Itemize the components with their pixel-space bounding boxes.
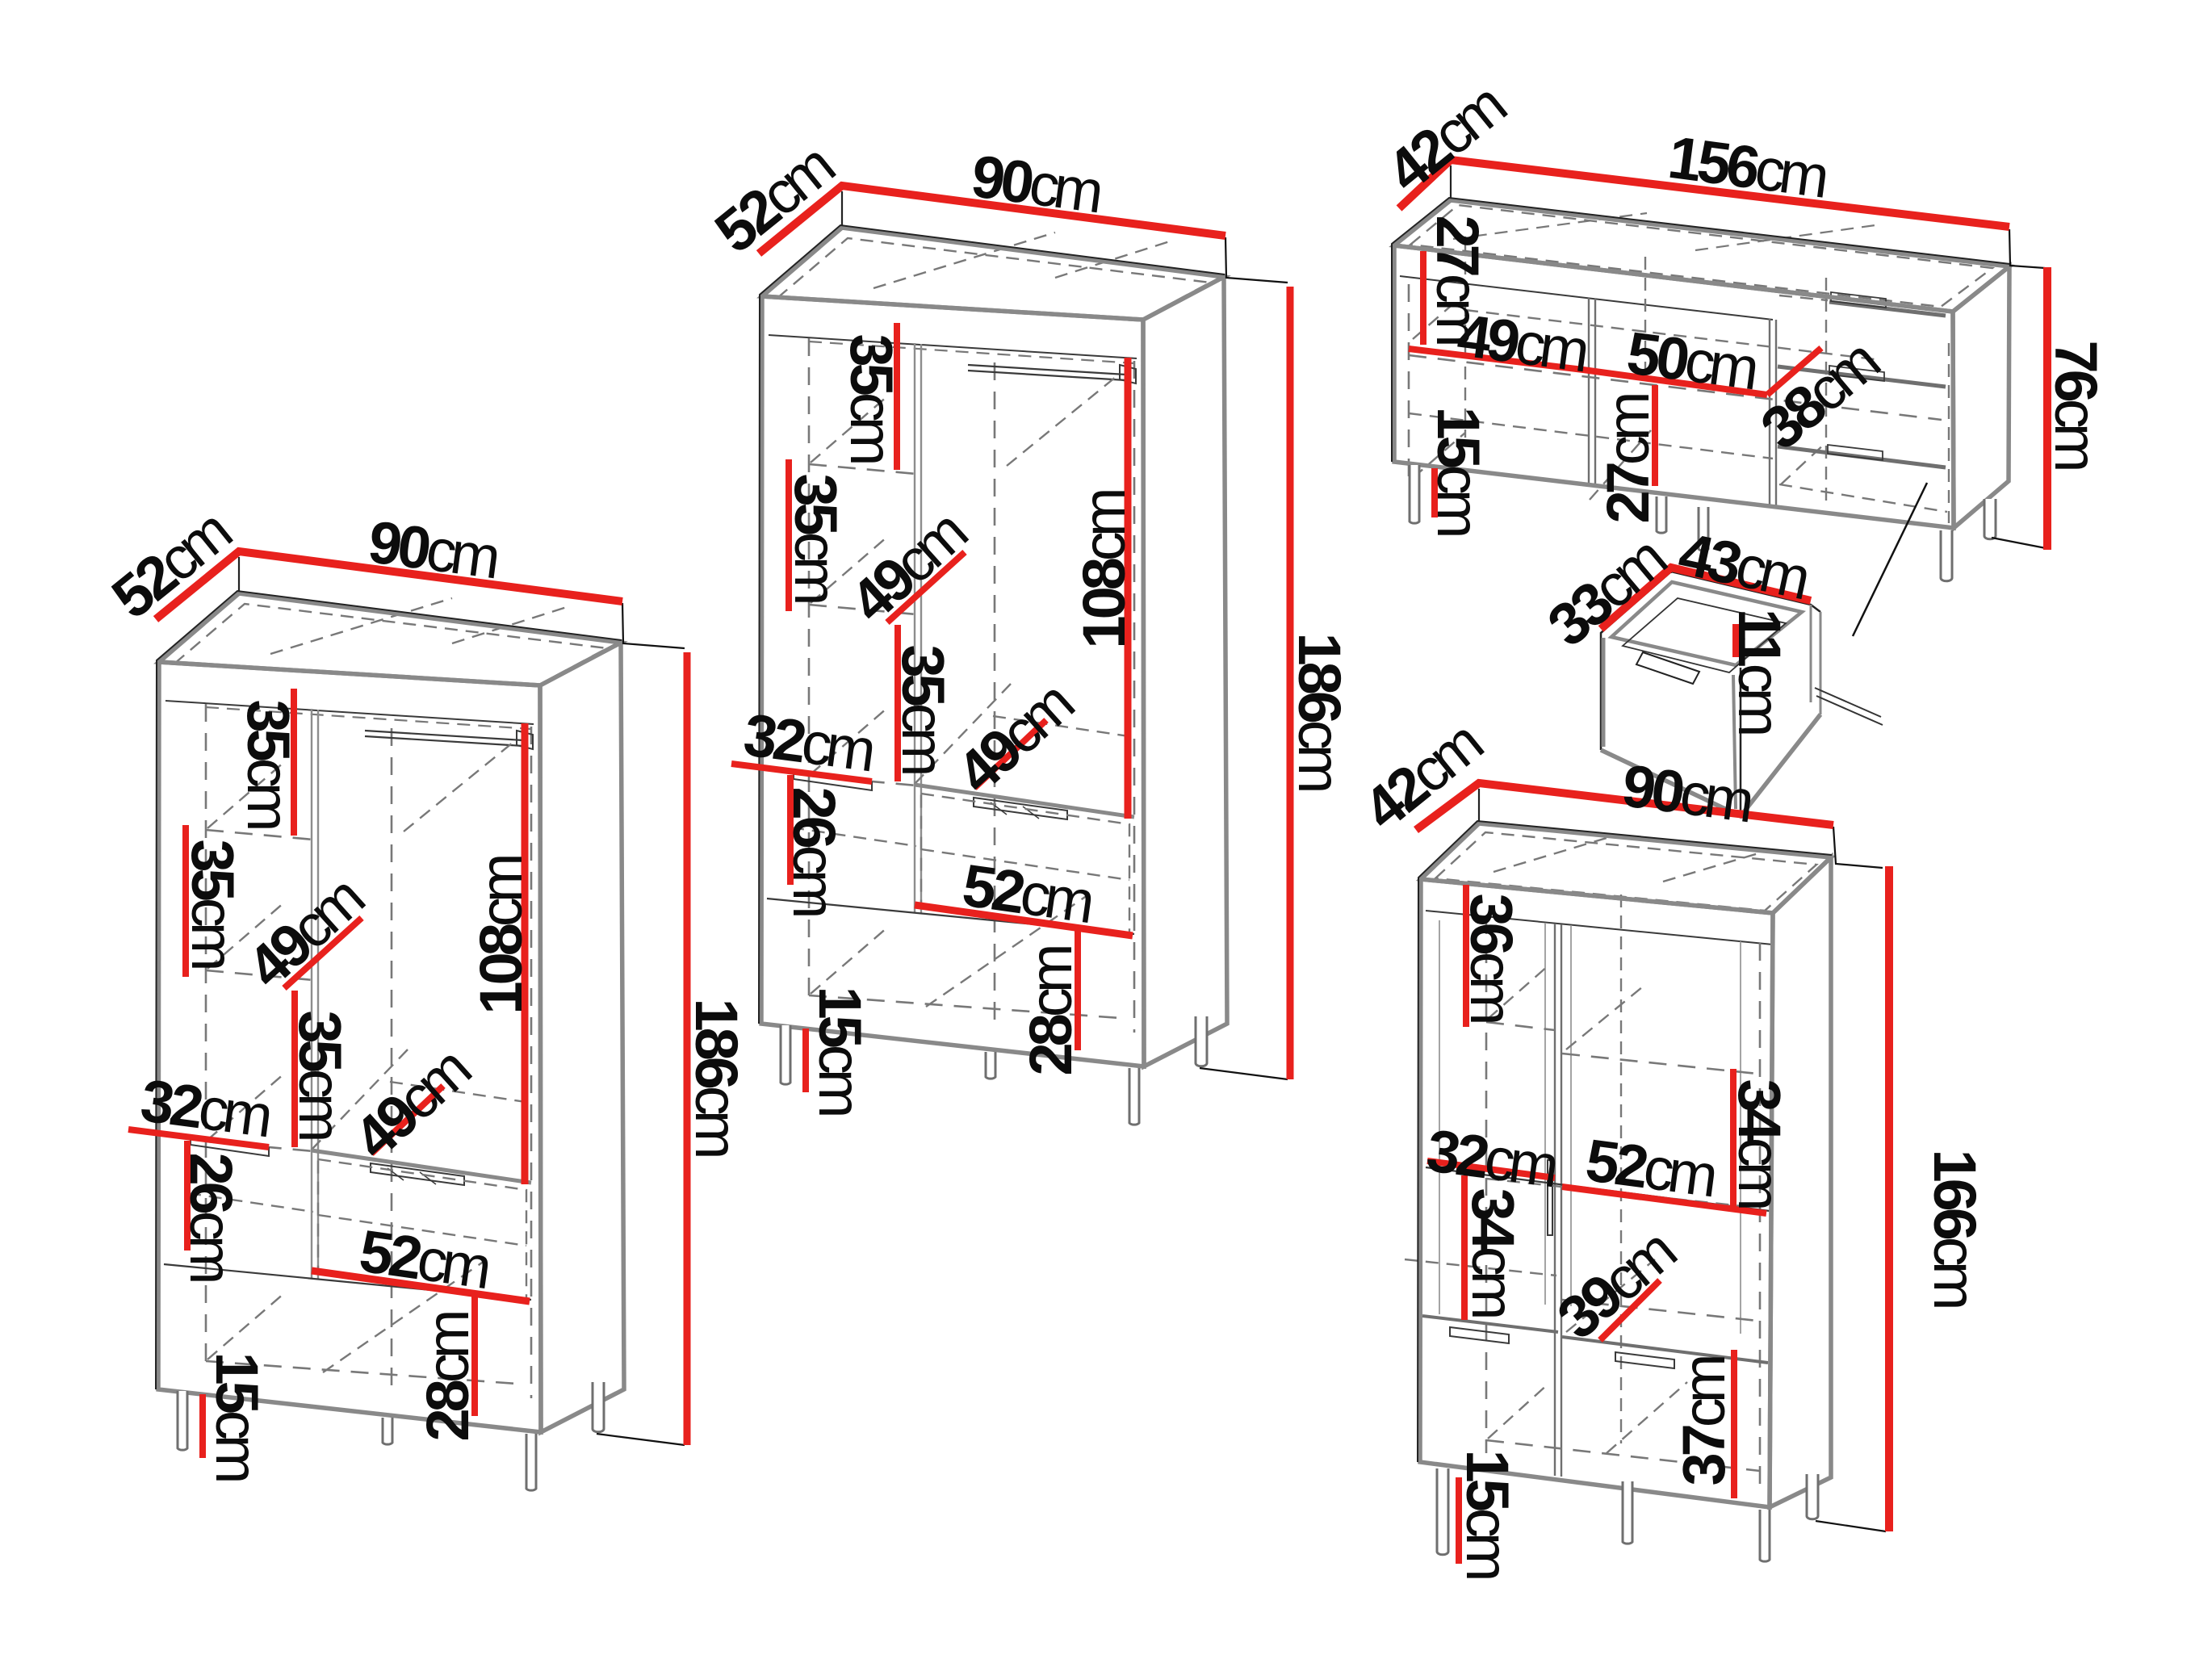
svg-text:28cm: 28cm <box>1017 947 1084 1075</box>
svg-text:35cm: 35cm <box>235 700 302 828</box>
svg-text:108cm: 108cm <box>1070 491 1137 648</box>
svg-text:15cm: 15cm <box>1425 407 1492 535</box>
svg-text:26cm: 26cm <box>781 787 848 915</box>
svg-text:26cm: 26cm <box>178 1153 245 1281</box>
svg-text:186cm: 186cm <box>683 998 750 1155</box>
svg-text:34cm: 34cm <box>1460 1188 1527 1317</box>
svg-text:37cm: 37cm <box>1670 1357 1737 1485</box>
svg-text:15cm: 15cm <box>203 1352 270 1481</box>
svg-text:27cm: 27cm <box>1594 395 1661 523</box>
svg-text:36cm: 36cm <box>1458 894 1525 1022</box>
svg-text:34cm: 34cm <box>1726 1079 1793 1208</box>
svg-text:76cm: 76cm <box>2042 341 2109 469</box>
svg-text:186cm: 186cm <box>1286 632 1353 790</box>
svg-text:28cm: 28cm <box>414 1313 481 1441</box>
svg-text:15cm: 15cm <box>806 987 873 1115</box>
svg-text:35cm: 35cm <box>838 334 905 463</box>
svg-text:15cm: 15cm <box>1454 1450 1521 1578</box>
svg-text:166cm: 166cm <box>1921 1149 1988 1306</box>
svg-text:108cm: 108cm <box>467 857 534 1014</box>
svg-text:11cm: 11cm <box>1726 609 1793 734</box>
